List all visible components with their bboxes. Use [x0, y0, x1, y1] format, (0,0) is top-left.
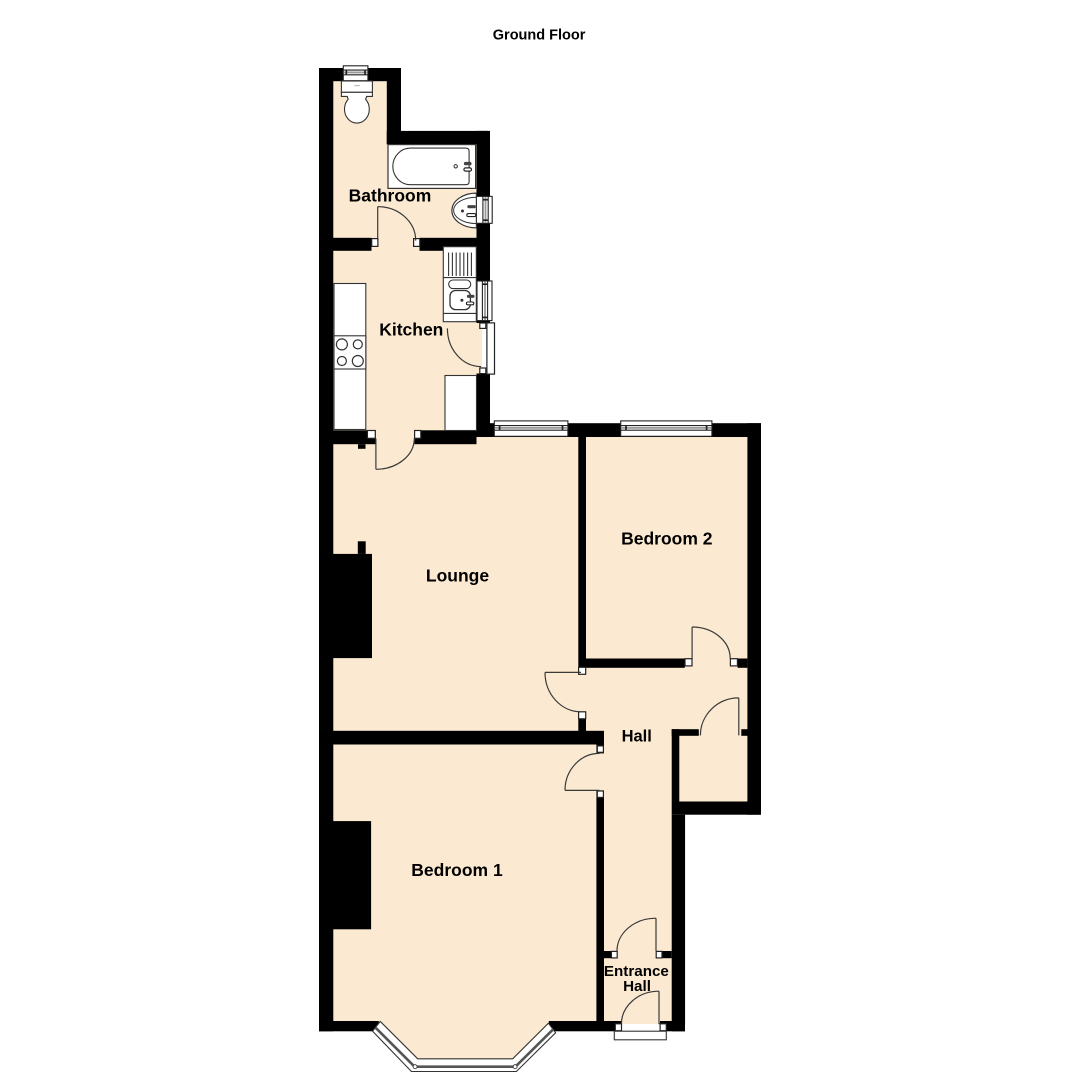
- svg-text:Bedroom 1: Bedroom 1: [411, 860, 503, 880]
- svg-text:Lounge: Lounge: [426, 565, 489, 585]
- svg-text:Kitchen: Kitchen: [379, 320, 443, 340]
- svg-text:Bedroom 2: Bedroom 2: [621, 528, 713, 548]
- svg-text:Bathroom: Bathroom: [349, 186, 432, 206]
- svg-text:Hall: Hall: [623, 978, 651, 995]
- svg-text:Hall: Hall: [622, 727, 652, 745]
- svg-text:Ground Floor: Ground Floor: [493, 27, 586, 43]
